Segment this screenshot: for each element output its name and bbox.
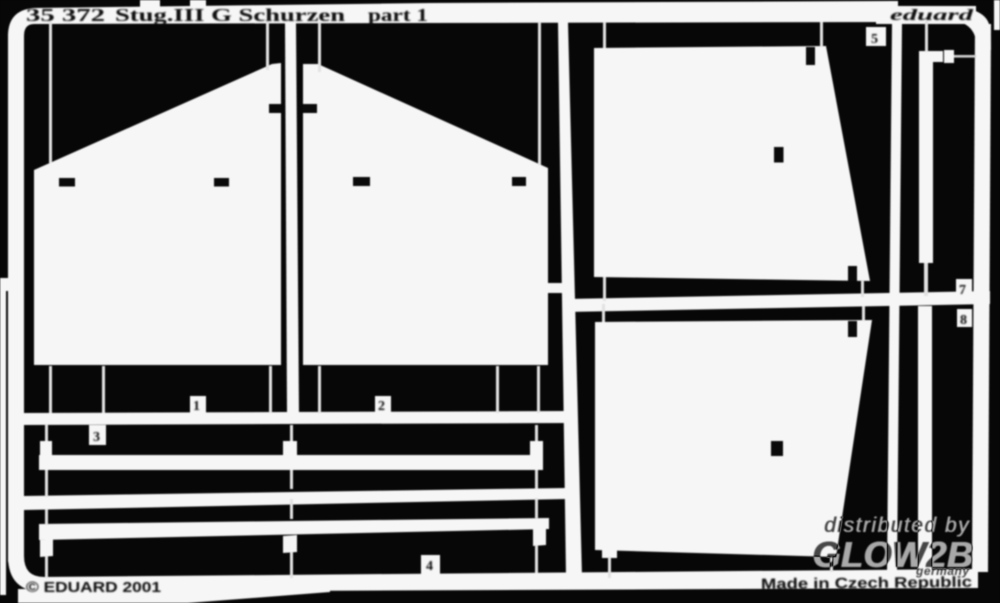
svg-text:1: 1 [193,399,200,414]
svg-text:3: 3 [93,430,100,445]
svg-text:35 372: 35 372 [26,5,105,25]
svg-text:8: 8 [960,313,967,328]
svg-text:Stug.III G Schurzen: Stug.III G Schurzen [115,5,345,25]
svg-text:© EDUARD 2001: © EDUARD 2001 [26,580,161,596]
svg-text:4: 4 [426,559,433,574]
svg-text:2: 2 [378,399,385,414]
svg-text:part 1: part 1 [368,5,428,25]
svg-text:eduard: eduard [890,7,975,24]
svg-text:5: 5 [871,32,878,47]
svg-text:7: 7 [959,283,966,298]
